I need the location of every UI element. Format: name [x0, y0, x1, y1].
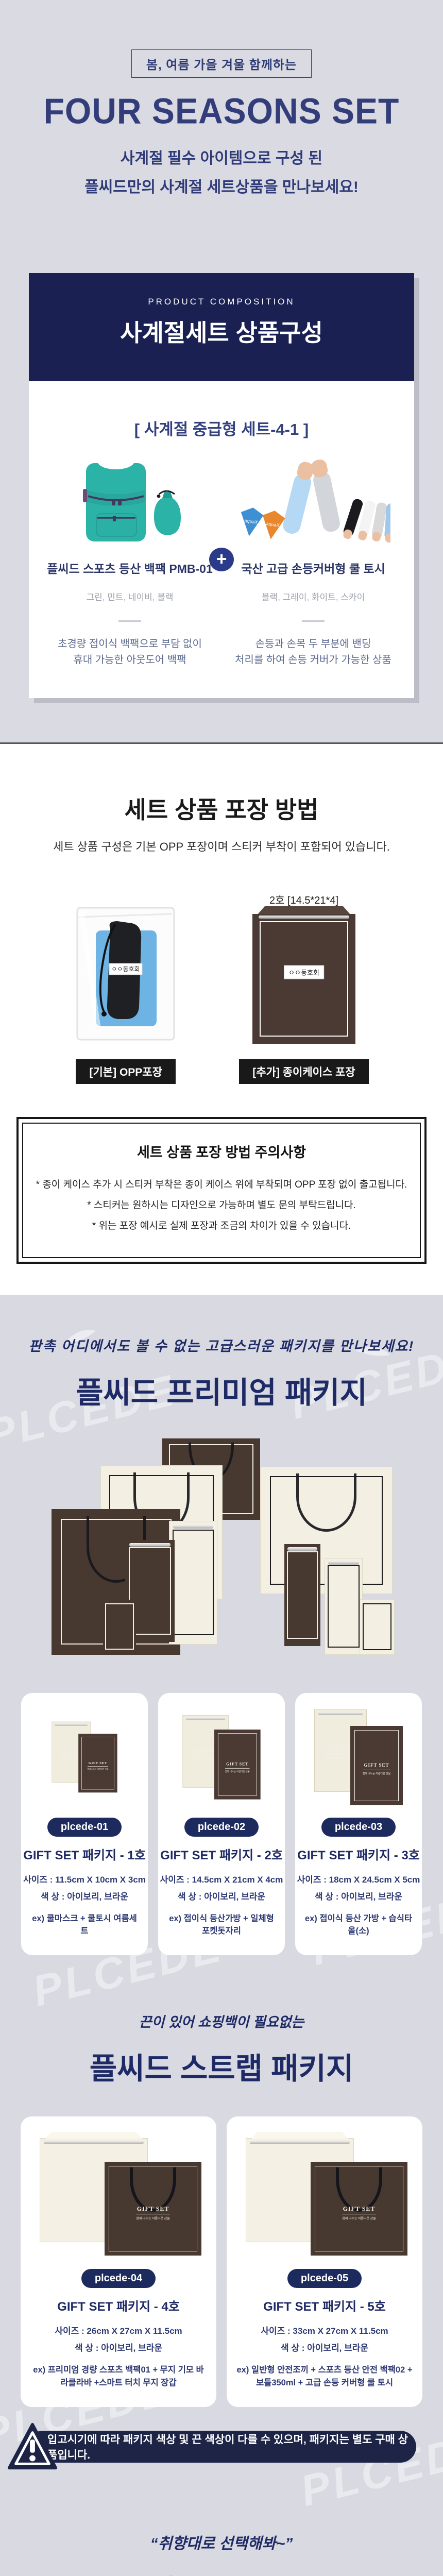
caution-item: * 종이 케이스 추가 시 스티커 부착은 종이 케이스 위에 부착되며 OPP… — [29, 1175, 414, 1195]
package-size: 사이즈 : 33cm X 27cm X 11.5cm — [227, 2324, 422, 2336]
product-grid: + — [29, 457, 414, 668]
gift-set-package-card: GIFT SET함께 나누는 아름다운 선물 GIFT SET함께 나누는 아름… — [295, 1693, 422, 1956]
hero-subtitle-1: 사계절 필수 아이템으로 구성 된 — [0, 151, 443, 166]
composition-title: 사계절세트 상품구성 — [29, 314, 414, 348]
paper-case-image: ㅇㅇ동호회 — [252, 914, 355, 1044]
arm-sleeves-image: aquaX aquaX — [228, 457, 398, 544]
arm-sleeves-icon: aquaX aquaX — [236, 458, 390, 544]
caution-title: 세트 상품 포장 방법 주의사항 — [29, 1141, 414, 1161]
product-description: 손등과 손목 두 부분에 밴딩 처리를 하여 손등 커버가 가능한 상품 — [228, 636, 398, 668]
package-title: GIFT SET 패키지 - 4호 — [21, 2296, 216, 2314]
package-example: ex) 접이식 등산가방 + 일체형 포켓돗자리 — [158, 1912, 285, 1938]
caution-list: * 종이 케이스 추가 시 스티커 부착은 종이 케이스 위에 부착되며 OPP… — [29, 1175, 414, 1236]
package-illustration: GIFT SET함께 나누는 아름다운 선물 GIFT SET함께 나누는 아름… — [33, 2130, 203, 2259]
package-title: GIFT SET 패키지 - 2호 — [158, 1845, 285, 1863]
package-example: ex) 접이식 등산 가방 + 습식타올(소) — [295, 1912, 422, 1938]
caution-item: * 스티커는 원하시는 디자인으로 가능하며 별도 문의 부탁드립니다. — [29, 1195, 414, 1216]
package-code-badge: plcede-04 — [81, 2269, 156, 2288]
gift-box — [325, 1558, 363, 1655]
package-code-badge: plcede-02 — [184, 1818, 259, 1837]
package-title: GIFT SET 패키지 - 1호 — [21, 1845, 148, 1863]
product-detail-page: 봄, 여름 가을 겨울 함께하는 FOUR SEASONS SET 사계절 필수… — [0, 0, 443, 2576]
premium-package-illustration — [52, 1438, 391, 1655]
packing-subtitle: 세트 상품 구성은 기본 OPP 포장이며 스티커 부착이 포함되어 있습니다. — [0, 838, 443, 854]
case-sticker: ㅇㅇ동호회 — [284, 965, 324, 979]
brown-box: GIFT SET함께 나누는 아름다운 선물 — [105, 2162, 201, 2256]
caution-inner: 세트 상품 포장 방법 주의사항 * 종이 케이스 추가 시 스티커 부착은 종… — [22, 1123, 421, 1258]
package-size: 사이즈 : 26cm X 27cm X 11.5cm — [21, 2324, 216, 2336]
product-backpack: 플씨드 스포츠 등산 백팩 PMB-01 그린, 민트, 네이비, 블랙 초경량… — [45, 457, 215, 668]
opp-bag-image: ㅇㅇ동호회 — [74, 904, 177, 1044]
package-code-badge: plcede-03 — [321, 1818, 396, 1837]
gift-set-package-card: GIFT SET함께 나누는 아름다운 선물 GIFT SET함께 나누는 아름… — [21, 2116, 216, 2407]
composition-card: PRODUCT COMPOSITION 사계절세트 상품구성 [ 사계절 중급형… — [29, 273, 414, 698]
plus-icon: + — [209, 548, 234, 571]
gift-set-package-card: GIFT SET함께 나누는 아름다운 선물 GIFT SET함께 나누는 아름… — [227, 2116, 422, 2407]
strap-notice-text: 입고시기에 따라 패키지 색상 및 끈 색상이 다를 수 있으며, 패키지는 별… — [47, 2431, 408, 2462]
package-illustration: GIFT SET함께 나누는 아름다운 선물 GIFT SET함께 나누는 아름… — [307, 1705, 410, 1807]
case-size: 2호 [14.5*21*4] — [269, 892, 338, 907]
package-color: 색 상 : 아이보리, 브라운 — [21, 1889, 148, 1902]
package-color: 색 상 : 아이보리, 브라운 — [295, 1889, 422, 1902]
gift-set-package-card: GIFT SET함께 나누는 아름다운 선물 GIFT SET함께 나누는 아름… — [158, 1693, 285, 1956]
composition-section: PRODUCT COMPOSITION 사계절세트 상품구성 [ 사계절 중급형… — [0, 273, 443, 744]
package-size: 사이즈 : 11.5cm X 10cm X 3cm — [21, 1872, 148, 1885]
package-title: GIFT SET 패키지 - 5호 — [227, 2296, 422, 2314]
product-description: 초경량 접이식 백팩으로 부담 없이 휴대 가능한 아웃도어 백팩 — [45, 636, 215, 668]
package-title: GIFT SET 패키지 - 3호 — [295, 1845, 422, 1863]
strap-title: 플씨드 스트랩 패키지 — [0, 2044, 443, 2088]
brown-box: GIFT SET함께 나누는 아름다운 선물 — [350, 1726, 403, 1805]
caution-box: 세트 상품 포장 방법 주의사항 * 종이 케이스 추가 시 스티커 부착은 종… — [16, 1117, 427, 1264]
backpack-image — [45, 457, 215, 544]
gift-box — [360, 1599, 395, 1655]
product-name: 국산 고급 손등커버형 쿨 토시 — [228, 559, 398, 577]
package-illustration: GIFT SET함께 나누는 아름다운 선물 GIFT SET함께 나누는 아름… — [176, 1711, 267, 1801]
package-size: 사이즈 : 18cm X 24.5cm X 5cm — [295, 1872, 422, 1885]
package-example: ex) 일반형 안전조끼 + 스포츠 등산 안전 백팩02 + 보틀350ml … — [227, 2364, 422, 2389]
package-illustration: GIFT SET함께 나누는 아름다운 선물 GIFT SET함께 나누는 아름… — [240, 2130, 410, 2259]
page-title: FOUR SEASONS SET — [0, 90, 443, 132]
packing-section: 세트 상품 포장 방법 세트 상품 구성은 기본 OPP 포장이며 스티커 부착… — [0, 744, 443, 1295]
strap-cards-row: GIFT SET함께 나누는 아름다운 선물 GIFT SET함께 나누는 아름… — [0, 2116, 443, 2407]
package-illustration: GIFT SET함께 나누는 아름다운 선물 GIFT SET함께 나누는 아름… — [46, 1718, 123, 1794]
backpack-icon — [65, 458, 194, 544]
opp-label: [기본] OPP포장 — [76, 1059, 175, 1084]
hero-subtitle-2: 플씨드만의 사계절 세트상품을 만나보세요! — [0, 180, 443, 195]
composition-header: PRODUCT COMPOSITION 사계절세트 상품구성 — [29, 273, 414, 381]
composition-eyebrow: PRODUCT COMPOSITION — [29, 273, 414, 307]
package-color: 색 상 : 아이보리, 브라운 — [227, 2341, 422, 2353]
gift-bag — [284, 1544, 320, 1646]
package-sections: PLCEDE PLCEDE PLCEDE PLCEDE PLCEDE PLCED… — [0, 1295, 443, 2576]
brown-box: GIFT SET함께 나누는 아름다운 선물 — [311, 2162, 407, 2256]
composition-body: [ 사계절 중급형 세트-4-1 ] + — [29, 381, 414, 698]
case-lid — [255, 906, 353, 914]
brown-box: GIFT SET함께 나누는 아름다운 선물 — [214, 1730, 261, 1800]
opp-column: ㅇㅇ동호회 [기본] OPP포장 — [74, 877, 177, 1084]
packing-grid: ㅇㅇ동호회 [기본] OPP포장 2호 [14.5*21*4] ㅇㅇ동호회 [추… — [0, 877, 443, 1084]
gift-set-package-card: GIFT SET함께 나누는 아름다운 선물 GIFT SET함께 나누는 아름… — [21, 1693, 148, 1956]
case-bar — [259, 916, 349, 919]
divider — [118, 620, 141, 622]
hero-badge: 봄, 여름 가을 겨울 함께하는 — [131, 49, 312, 78]
premium-cards-row: GIFT SET함께 나누는 아름다운 선물 GIFT SET함께 나누는 아름… — [0, 1693, 443, 1956]
strap-notice-bar: 입고시기에 따라 패키지 색상 및 끈 색상이 다를 수 있으며, 패키지는 별… — [27, 2431, 416, 2463]
premium-title: 플씨드 프리미엄 패키지 — [0, 1368, 443, 1412]
packing-title: 세트 상품 포장 방법 — [0, 791, 443, 825]
brown-box: GIFT SET함께 나누는 아름다운 선물 — [78, 1734, 117, 1792]
product-colors: 그린, 민트, 네이비, 블랙 — [45, 590, 215, 603]
strap-tagline: 끈이 있어 쇼핑백이 필요없는 — [0, 1955, 443, 2031]
gift-box — [169, 1521, 217, 1645]
package-example: ex) 프리미엄 경량 스포츠 백팩01 + 무지 기모 바라클라바 +스마트 … — [21, 2364, 216, 2389]
caution-item: * 위는 포장 예시로 실제 포장과 조금의 차이가 있을 수 있습니다. — [29, 1216, 414, 1236]
divider — [302, 620, 325, 622]
package-size: 사이즈 : 14.5cm X 21cm X 4cm — [158, 1872, 285, 1885]
gift-box — [103, 1600, 136, 1654]
svg-text:ㅇㅇ동호회: ㅇㅇ동호회 — [112, 965, 140, 973]
package-example: ex) 쿨마스크 + 쿨토시 여름세트 — [21, 1912, 148, 1938]
package-code-badge: plcede-01 — [47, 1818, 122, 1837]
product-colors: 블랙, 그레이, 화이트, 스카이 — [228, 590, 398, 603]
package-code-badge: plcede-05 — [287, 2269, 362, 2288]
premium-tagline: 판촉 어디에서도 볼 수 없는 고급스러운 패키지를 만나보세요! — [0, 1295, 443, 1355]
package-color: 색 상 : 아이보리, 브라운 — [158, 1889, 285, 1902]
product-name: 플씨드 스포츠 등산 백팩 PMB-01 — [45, 559, 215, 577]
product-arm-sleeves: aquaX aquaX 국산 고급 손등커버형 쿨 토시 블랙, 그레이, 화이… — [228, 457, 398, 668]
wrap-title: 프리미엄 선물포장지 — [0, 2567, 443, 2576]
set-name: [ 사계절 중급형 세트-4-1 ] — [29, 381, 414, 439]
package-color: 색 상 : 아이보리, 브라운 — [21, 2341, 216, 2353]
hero-section: 봄, 여름 가을 겨울 함께하는 FOUR SEASONS SET 사계절 필수… — [0, 0, 443, 273]
paper-case-column: 2호 [14.5*21*4] ㅇㅇ동호회 [추가] 종이케이스 포장 — [239, 877, 369, 1084]
paper-case-label: [추가] 종이케이스 포장 — [239, 1059, 369, 1084]
wrap-tagline: “취향대로 선택해봐~” — [0, 2463, 443, 2553]
